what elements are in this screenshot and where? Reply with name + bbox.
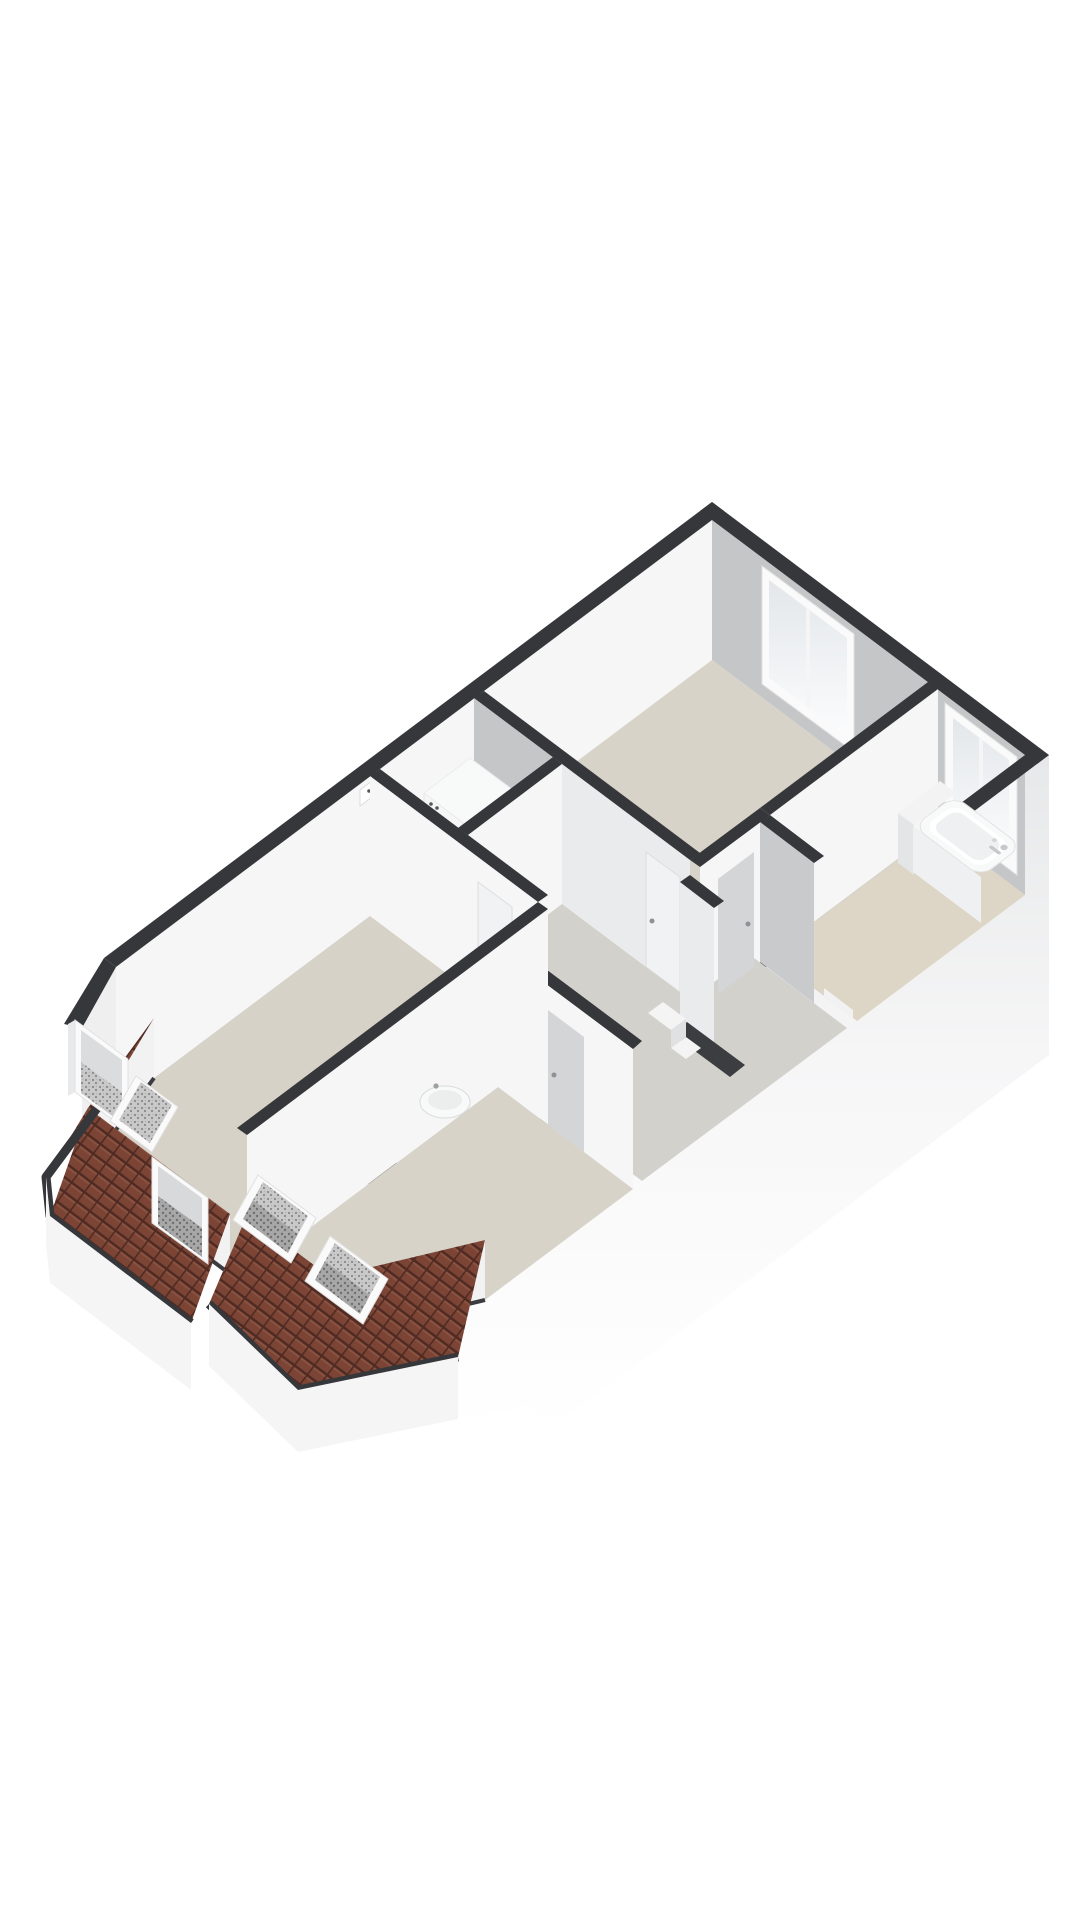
dormer-side [68, 1020, 75, 1096]
door-handle [650, 919, 655, 924]
sink-bowl [428, 1090, 462, 1110]
washer-knob [435, 806, 439, 810]
sink-tap [433, 1083, 438, 1088]
washer-knob [429, 802, 433, 806]
door-handle [746, 922, 751, 927]
door-handle [552, 1073, 557, 1078]
floor-plan-canvas [0, 0, 1080, 1920]
floor-plan-3d-render [0, 0, 1080, 1920]
window-mullion [806, 608, 810, 709]
